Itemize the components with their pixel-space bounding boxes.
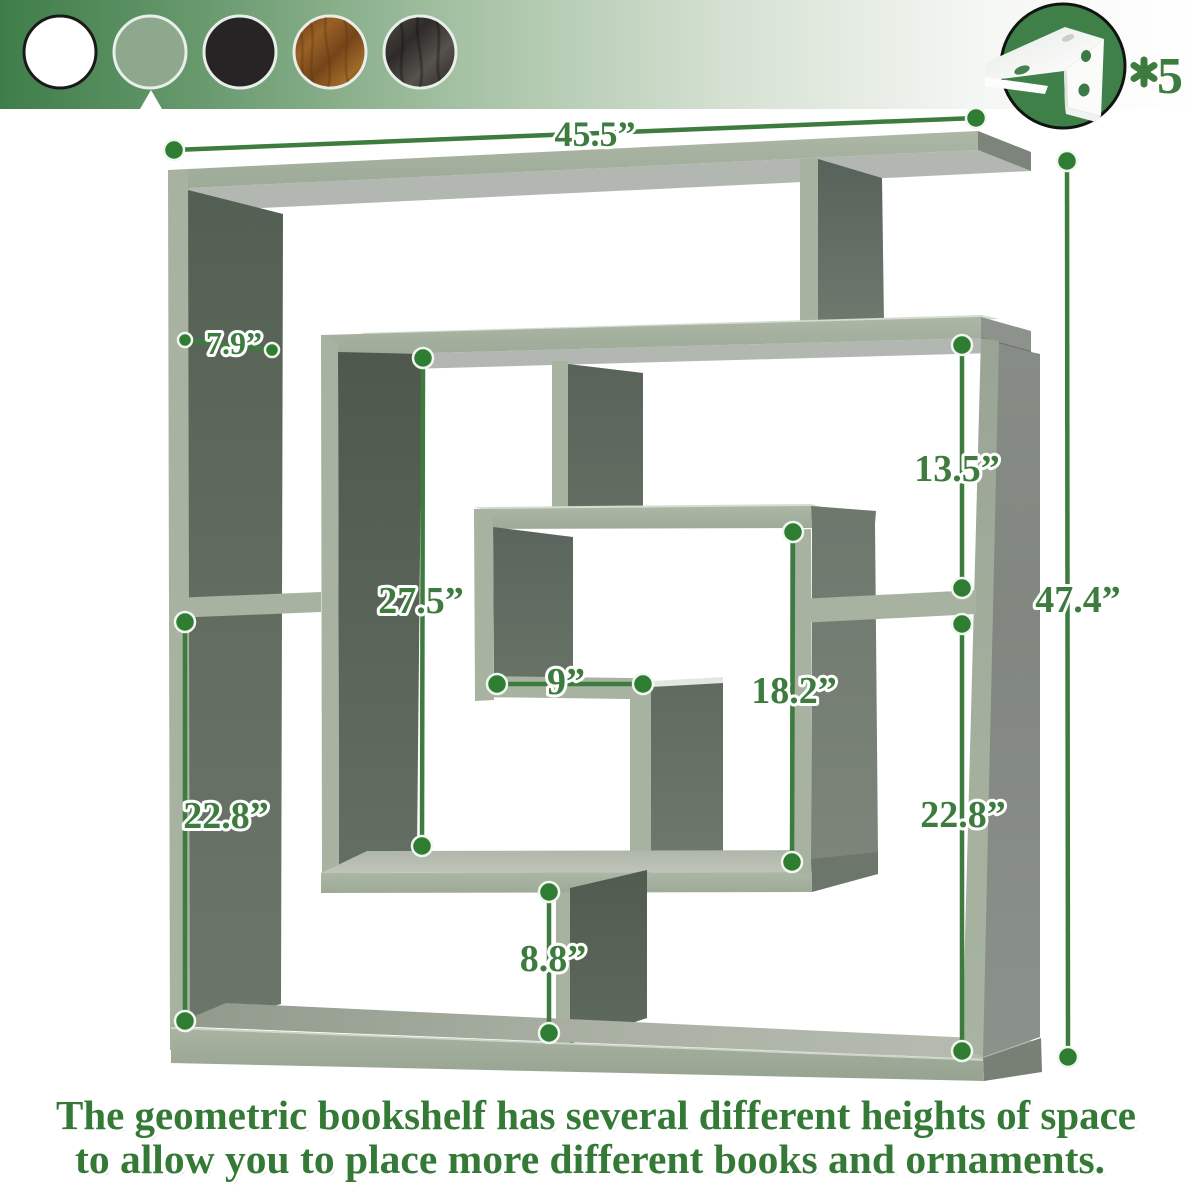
- svg-text:13.5”: 13.5”: [914, 448, 1000, 490]
- svg-text:5: 5: [1157, 48, 1183, 105]
- svg-text:The geometric bookshelf has se: The geometric bookshelf has several diff…: [56, 1092, 1136, 1138]
- svg-text:7.9”: 7.9”: [206, 325, 262, 361]
- svg-text:9”: 9”: [547, 661, 585, 703]
- svg-text:27.5”: 27.5”: [378, 580, 464, 622]
- svg-text:22.8”: 22.8”: [183, 795, 269, 837]
- svg-text:to allow you to place more dif: to allow you to place more different boo…: [75, 1136, 1105, 1182]
- svg-text:18.2”: 18.2”: [751, 670, 837, 712]
- svg-text:47.4”: 47.4”: [1035, 579, 1121, 621]
- svg-text:22.8”: 22.8”: [920, 794, 1006, 836]
- svg-text:45.5”: 45.5”: [555, 114, 636, 154]
- svg-text:8.8”: 8.8”: [520, 938, 587, 980]
